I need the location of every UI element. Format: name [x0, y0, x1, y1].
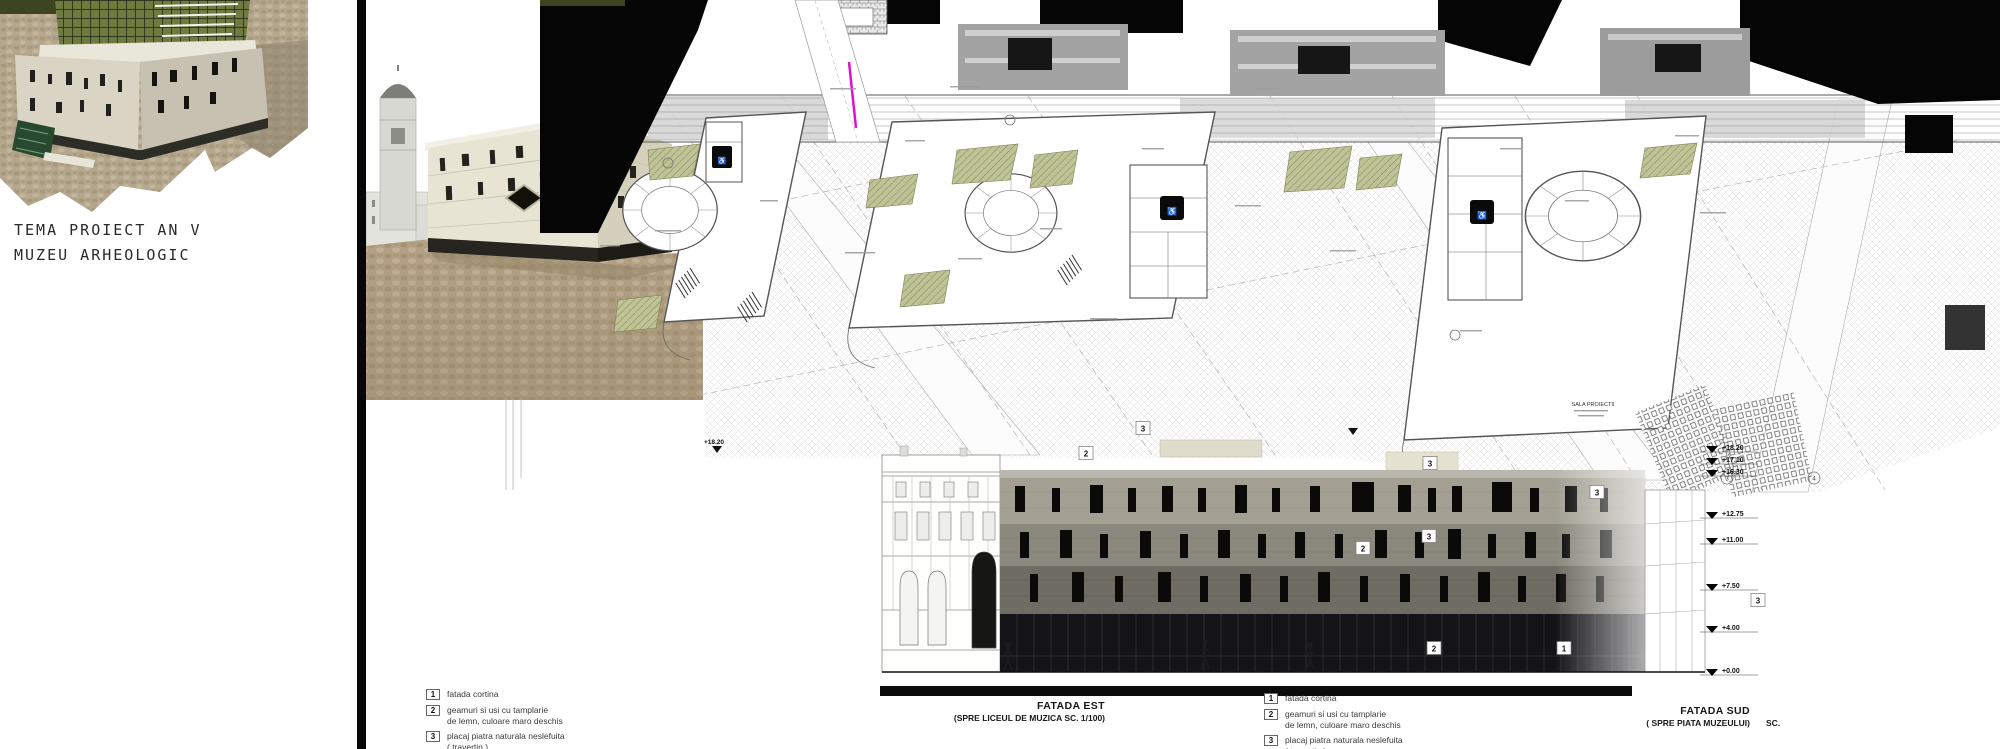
- material-tag: 3: [1427, 533, 1432, 542]
- facade-south-title: FATADA SUD: [1450, 705, 1750, 717]
- legend-text-2b: de lemn, culoare maro deschis: [447, 716, 563, 726]
- facade-south-subtitle: ( SPRE PIATA MUZEULUI): [1450, 718, 1750, 728]
- presentation-board: TEMA PROIECT AN V MUZEU ARHEOLOGIC: [0, 0, 2000, 749]
- legend-text-3b: ( travertin ): [1285, 746, 1326, 749]
- south-wireframe-end: [1645, 490, 1705, 672]
- wheelchair-icon: ♿: [1167, 206, 1177, 216]
- south-museum-facade: MUZEUL DE ARHEOLOGIE: [882, 440, 1705, 672]
- wheelchair-icon: ♿: [1477, 210, 1487, 220]
- legend-num-1: 1: [1264, 693, 1278, 704]
- legend-text-1: fatada cortina: [1285, 693, 1337, 704]
- south-existing-building: [882, 446, 1000, 672]
- materials-legend-east: 1 fatada cortina 2 geamuri si usi cu tam…: [426, 689, 565, 749]
- legend-text-2b: de lemn, culoare maro deschis: [1285, 720, 1401, 730]
- project-title: TEMA PROIECT AN V MUZEU ARHEOLOGIC: [14, 218, 202, 268]
- legend-text-2a: geamuri si usi cu tamplarie: [447, 705, 548, 715]
- level-label: +18.20: [1722, 445, 1744, 452]
- materials-legend-south: 1 fatada cortina 2 geamuri si usi cu tam…: [1264, 693, 1403, 749]
- level-label: +4.00: [1722, 625, 1740, 632]
- legend-row: 2 geamuri si usi cu tamplarie de lemn, c…: [1264, 709, 1403, 730]
- wheelchair-icon: ♿: [718, 156, 727, 165]
- legend-text-3a: placaj piatra naturala neslefuita: [447, 731, 565, 741]
- south-ground-band: [880, 686, 1632, 696]
- facade-east-subtitle: (SPRE LICEUL DE MUZICA SC. 1/100): [705, 713, 1105, 723]
- plan-label-sala-proiectii: SALA PROIECTII: [1572, 402, 1615, 408]
- material-tag: 2: [1432, 645, 1437, 654]
- material-tag: 2: [1084, 450, 1089, 459]
- legend-row: 3 placaj piatra naturala neslefuita ( tr…: [1264, 735, 1403, 749]
- material-tag: 3: [1756, 597, 1761, 606]
- legend-row: 2 geamuri si usi cu tamplarie de lemn, c…: [426, 705, 565, 726]
- facade-south-title-block: FATADA SUD ( SPRE PIATA MUZEULUI): [1450, 705, 1750, 728]
- material-tag: 1: [1562, 645, 1567, 654]
- material-tag: 3: [1428, 460, 1433, 469]
- legend-text-3a: placaj piatra naturala neslefuita: [1285, 735, 1403, 745]
- legend-row: 1 fatada cortina: [1264, 693, 1403, 704]
- facade-east-title: FATADA EST: [705, 700, 1105, 712]
- legend-num-1: 1: [426, 689, 440, 700]
- level-label: +12.75: [1722, 511, 1744, 518]
- south-level-markers: +18.20 +17.10 +16.30 +12.75 +11.00 +7.50…: [1700, 445, 1758, 676]
- material-tag: 2: [1361, 545, 1366, 554]
- level-label: +17.10: [1722, 457, 1744, 464]
- legend-num-3: 3: [1264, 735, 1278, 746]
- level-label: +0.00: [1722, 668, 1740, 675]
- legend-num-3: 3: [426, 731, 440, 742]
- material-tag: 3: [1141, 425, 1146, 434]
- legend-text-3b: ( travertin ): [447, 742, 488, 749]
- massing-gray: [958, 24, 1750, 96]
- legend-row: 1 fatada cortina: [426, 689, 565, 700]
- legend-text-2a: geamuri si usi cu tamplarie: [1285, 709, 1386, 719]
- facade-south-scale-label: SC.: [1766, 718, 1780, 728]
- facade-south-drawing: MUZEUL DE ARHEOLOGIE: [848, 415, 1810, 700]
- legend-text-1: fatada cortina: [447, 689, 499, 700]
- material-tag: 3: [1595, 489, 1600, 498]
- level-label: +16.30: [1722, 469, 1744, 476]
- level-label: +11.00: [1722, 537, 1743, 544]
- legend-row: 3 placaj piatra naturala neslefuita ( tr…: [426, 731, 565, 749]
- project-title-line2: MUZEU ARHEOLOGIC: [14, 246, 191, 264]
- aerial-render: [0, 0, 312, 220]
- legend-num-2: 2: [426, 705, 440, 716]
- legend-num-2: 2: [1264, 709, 1278, 720]
- project-title-line1: TEMA PROIECT AN V: [14, 221, 202, 239]
- facade-east-title-block: FATADA EST (SPRE LICEUL DE MUZICA SC. 1/…: [705, 700, 1105, 723]
- level-label: +7.50: [1722, 583, 1740, 590]
